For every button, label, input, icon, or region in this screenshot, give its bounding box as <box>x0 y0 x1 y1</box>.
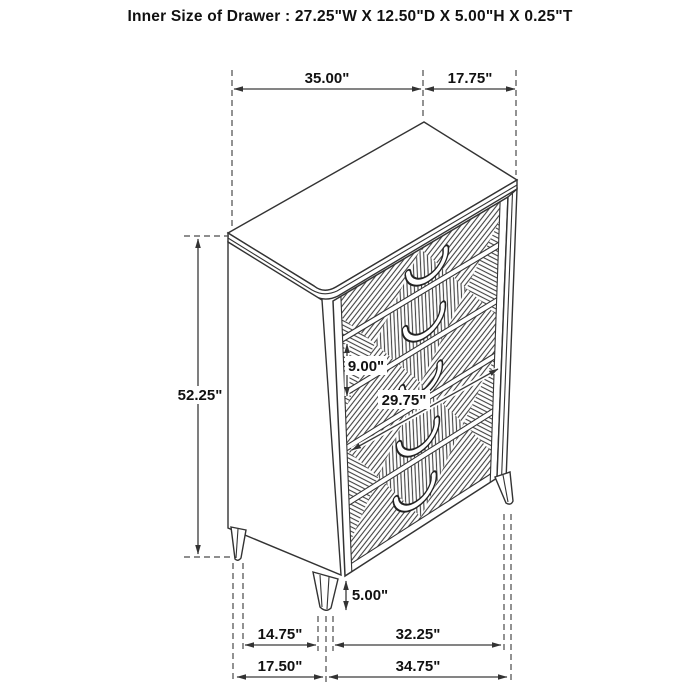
dresser-drawing: 35.00" 17.75" 52.25" 9.00" 29.75" 5.00" … <box>0 0 700 700</box>
dimension-diagram: Inner Size of Drawer : 27.25"W X 12.50"D… <box>0 0 700 700</box>
rear-left-leg <box>231 527 246 560</box>
dim-drawer-height-label: 9.00" <box>348 358 384 375</box>
dim-leg-height-label: 5.00" <box>352 587 388 604</box>
dim-base-depth-label: 17.50" <box>258 658 303 675</box>
dim-height-label: 52.25" <box>178 387 223 404</box>
dim-base-width-label: 34.75" <box>396 658 441 675</box>
dim-top-depth-label: 17.75" <box>448 70 493 87</box>
front-leg <box>313 572 338 610</box>
dim-top-width-label: 35.00" <box>305 70 350 87</box>
right-leg <box>495 472 513 504</box>
dim-drawer-width-label: 29.75" <box>382 392 427 409</box>
dim-base-inner-width-label: 32.25" <box>396 626 441 643</box>
dim-base-inner-depth-label: 14.75" <box>258 626 303 643</box>
